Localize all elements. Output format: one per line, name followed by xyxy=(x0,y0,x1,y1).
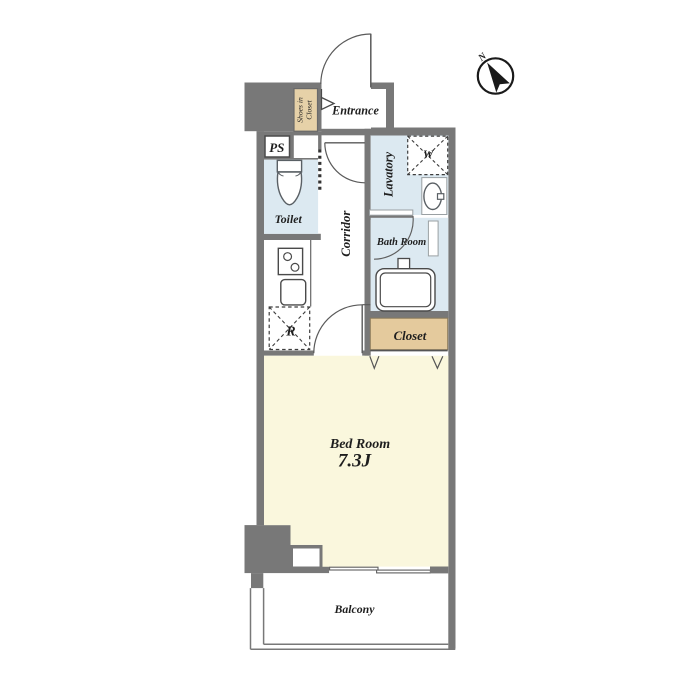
svg-text:Toilet: Toilet xyxy=(275,212,303,226)
svg-text:Shoes in: Shoes in xyxy=(296,97,305,123)
svg-text:Corridor: Corridor xyxy=(339,210,353,257)
svg-text:W: W xyxy=(423,149,434,161)
svg-text:Entrance: Entrance xyxy=(331,104,379,118)
svg-text:7.3J: 7.3J xyxy=(338,451,372,472)
svg-text:Balcony: Balcony xyxy=(334,602,376,616)
svg-text:Closet: Closet xyxy=(394,329,427,343)
svg-text:R: R xyxy=(285,325,295,340)
svg-text:Lavatory: Lavatory xyxy=(381,151,395,198)
svg-text:Closet: Closet xyxy=(305,99,314,119)
svg-text:PS: PS xyxy=(269,140,284,155)
svg-text:Bath Room: Bath Room xyxy=(376,237,426,248)
